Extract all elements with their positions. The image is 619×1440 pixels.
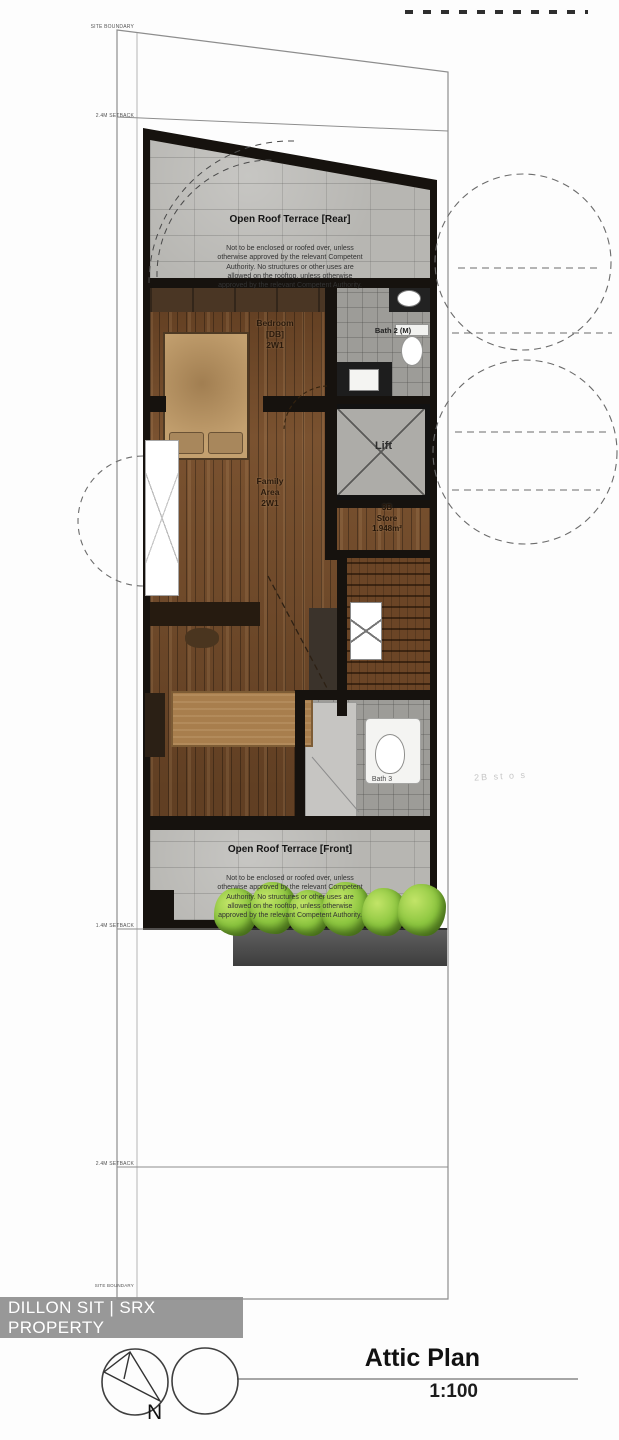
faint-annotation: 2B st o s [474,767,574,782]
rear-terrace-body: Not to be enclosed or roofed over, unles… [184,244,396,290]
north-label: N [147,1401,177,1425]
wall [325,286,337,560]
side-cabinet [145,693,165,757]
lift-label: Lift [337,440,430,452]
window-panel [145,440,179,596]
setback-label-mid: 1.4M SETBACK [56,923,134,929]
bath3-label: Bath 3 [352,776,412,783]
wall [150,890,174,920]
page-title: Attic Plan [300,1344,480,1373]
pillow [208,432,243,454]
front-terrace-note: Open Roof Terrace [Front] Not to be encl… [184,826,396,938]
bedroom-label: Bedroom [DB] 2W1 [230,318,320,351]
tree-leader-dashes [452,268,612,490]
wall [343,550,430,558]
wall [295,690,430,700]
family-area-label: Family Area 2W1 [225,476,315,509]
chair [185,628,219,648]
floor-plan-page: Open Roof Terrace [Rear] Not to be enclo… [0,0,619,1440]
rear-terrace-note: Open Roof Terrace [Rear] Not to be enclo… [184,196,396,308]
setback-label-low: 2.4M SETBACK [56,1161,134,1167]
front-terrace-body: Not to be enclosed or roofed over, unles… [184,874,396,920]
lift-shaft [332,404,430,500]
watermark-text: DILLON SIT | SRX PROPERTY [8,1298,243,1338]
tree-canopy-icon [433,360,617,544]
basin-icon [349,369,379,391]
site-boundary-label-bottom: SITE BOUNDARY [56,1283,134,1288]
wall [263,396,325,412]
rug [171,691,313,747]
rear-terrace-title: Open Roof Terrace [Rear] [184,214,396,226]
store-label: 3B Store 1.948m² [348,503,426,535]
shrub-icon [398,884,446,936]
bath2-label: Bath 2 (M) [360,326,426,335]
wall [332,396,430,404]
watermark-banner: DILLON SIT | SRX PROPERTY [0,1297,243,1338]
setback-line-top [117,117,448,131]
stair-void [350,602,382,660]
tree-canopy-icon [435,174,611,350]
wall [295,690,305,825]
plan-scale: 1:100 [300,1381,478,1403]
wall [150,396,166,412]
site-boundary-label-top: SITE BOUNDARY [56,24,134,30]
basin-icon [397,290,421,307]
tree-canopy-arc [78,456,143,586]
front-terrace-title: Open Roof Terrace [Front] [184,844,396,856]
desk [150,602,260,626]
setback-label-top: 2.4M SETBACK [56,113,134,119]
toilet-icon [375,734,405,774]
toilet-icon [401,336,423,366]
